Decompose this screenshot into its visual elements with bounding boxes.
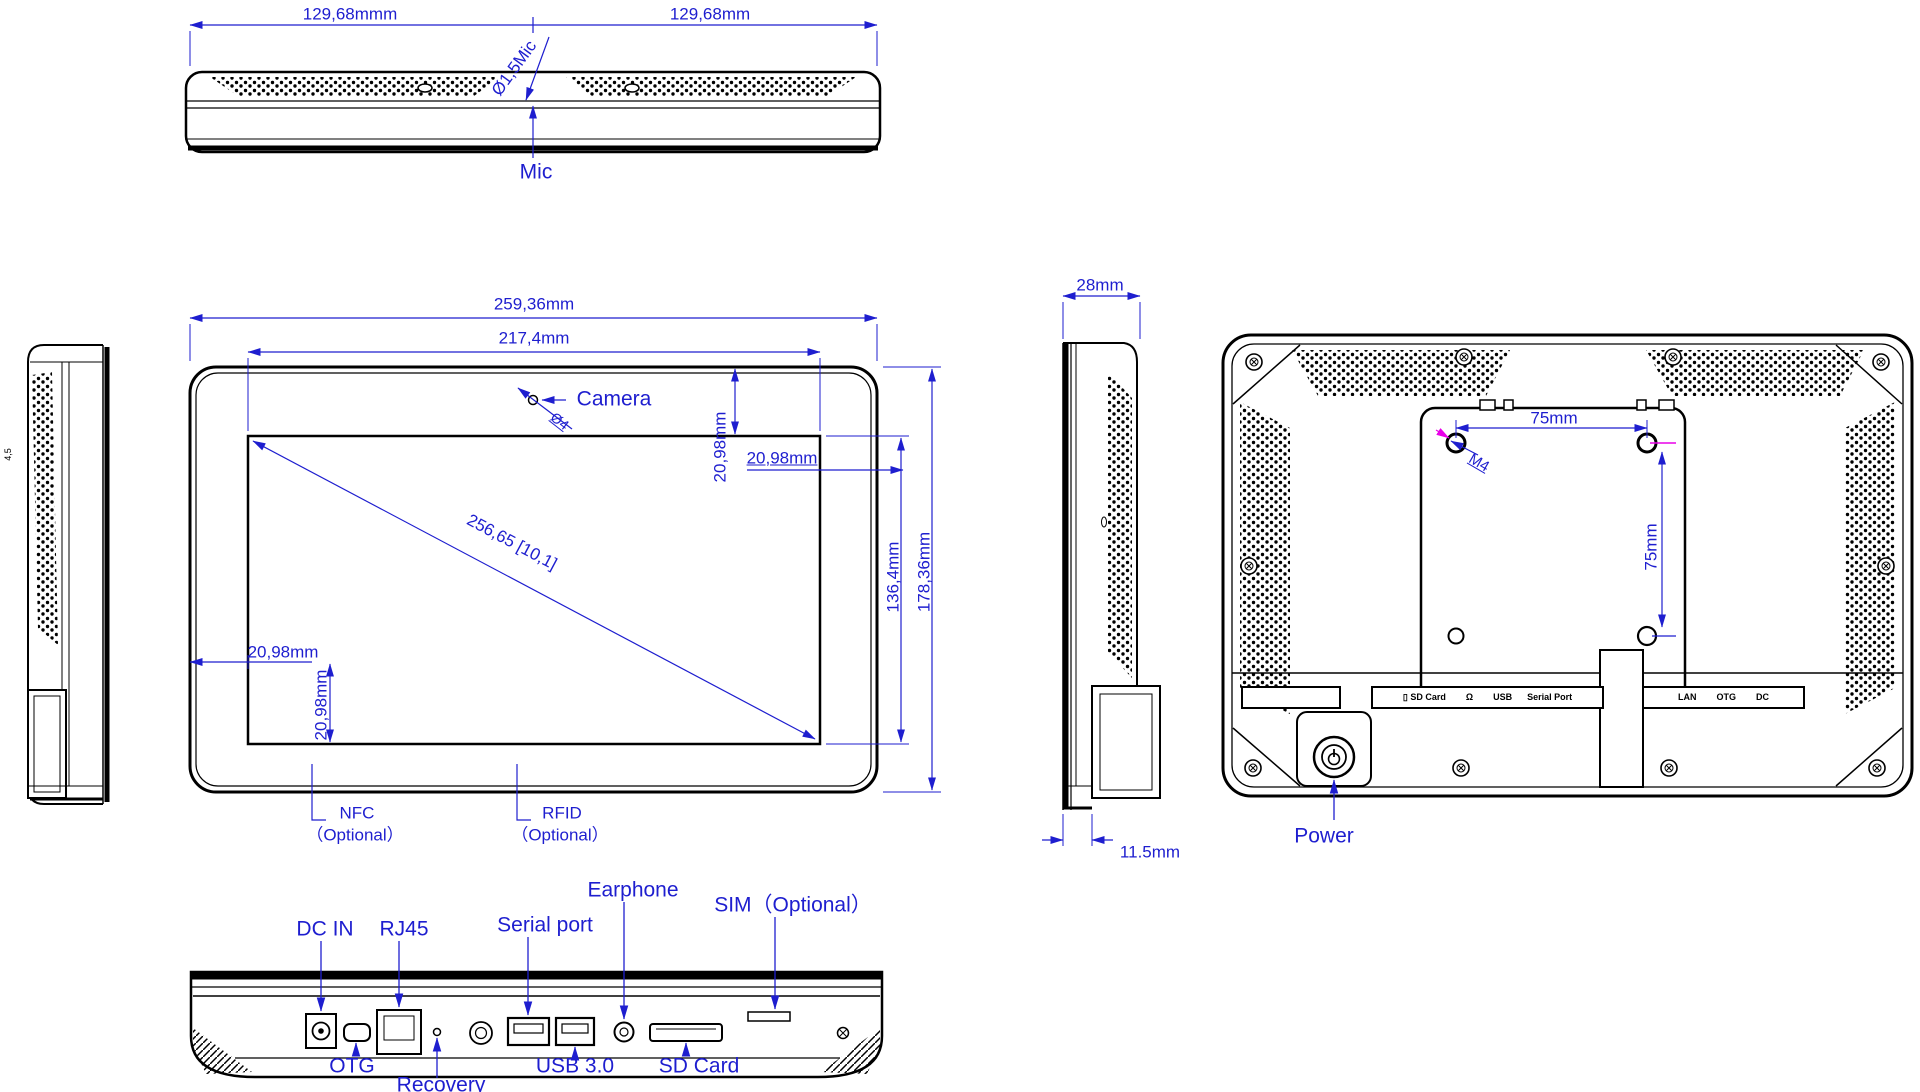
front-screen-height-label: 136,4mm: [885, 542, 902, 613]
front-width-outer-label: 259,36mm: [494, 296, 574, 313]
earphone-label: Earphone: [587, 880, 678, 901]
top-view-drawing: [186, 17, 880, 158]
serial-port-label: Serial port: [497, 915, 593, 936]
top-dim-left-label: 129,68mmm: [303, 6, 397, 23]
top-dim-right-label: 129,68mm: [670, 6, 750, 23]
front-width-screen-label: 217,4mm: [499, 330, 570, 347]
side-stand-depth-label: 11.5mm: [1120, 844, 1180, 861]
side-view-drawing: [1042, 296, 1160, 846]
sd-card-label: SD Card: [659, 1056, 740, 1077]
vesa-height-label: 75mm: [1643, 523, 1660, 570]
side-depth-label: 28mm: [1076, 277, 1123, 294]
rj45-label: RJ45: [379, 919, 428, 940]
front-margin-top-right-label: 20,98mm: [712, 412, 729, 483]
power-label: Power: [1294, 826, 1354, 847]
left-side-view-drawing: [28, 345, 107, 804]
drawing-layer: [0, 0, 1920, 1092]
usb3-label: USB 3.0: [536, 1056, 614, 1077]
recovery-label: Recovery: [397, 1075, 486, 1092]
rfid-optional-label: （Optional）: [511, 827, 608, 844]
dc-in-label: DC IN: [296, 919, 353, 940]
front-height-label: 178,36mm: [916, 532, 933, 612]
front-view-drawing: [190, 318, 941, 820]
front-margin-right-label: 20,98mm: [747, 450, 818, 467]
back-port-strip-left: ▯ SD Card Ω USB Serial Port: [1372, 687, 1603, 708]
left-side-tiny-mark: 4,5: [4, 448, 13, 461]
nfc-optional-label: （Optional）: [306, 827, 403, 844]
front-margin-left-label: 20,98mm: [248, 644, 319, 661]
sim-label: SIM（Optional）: [714, 895, 872, 916]
vesa-width-label: 75mm: [1530, 410, 1577, 427]
rfid-label: RFID: [542, 805, 582, 822]
camera-label: Camera: [577, 389, 652, 410]
otg-label: OTG: [329, 1056, 375, 1077]
back-port-strip-right: LAN OTG DC: [1643, 687, 1804, 708]
mic-label: Mic: [520, 162, 553, 183]
engineering-drawing-page: 129,68mmm 129,68mm Ø1,5Mic Mic 4,5 259,3…: [0, 0, 1920, 1092]
front-margin-bottom-label: 20,98mm: [313, 670, 330, 741]
nfc-label: NFC: [340, 805, 375, 822]
